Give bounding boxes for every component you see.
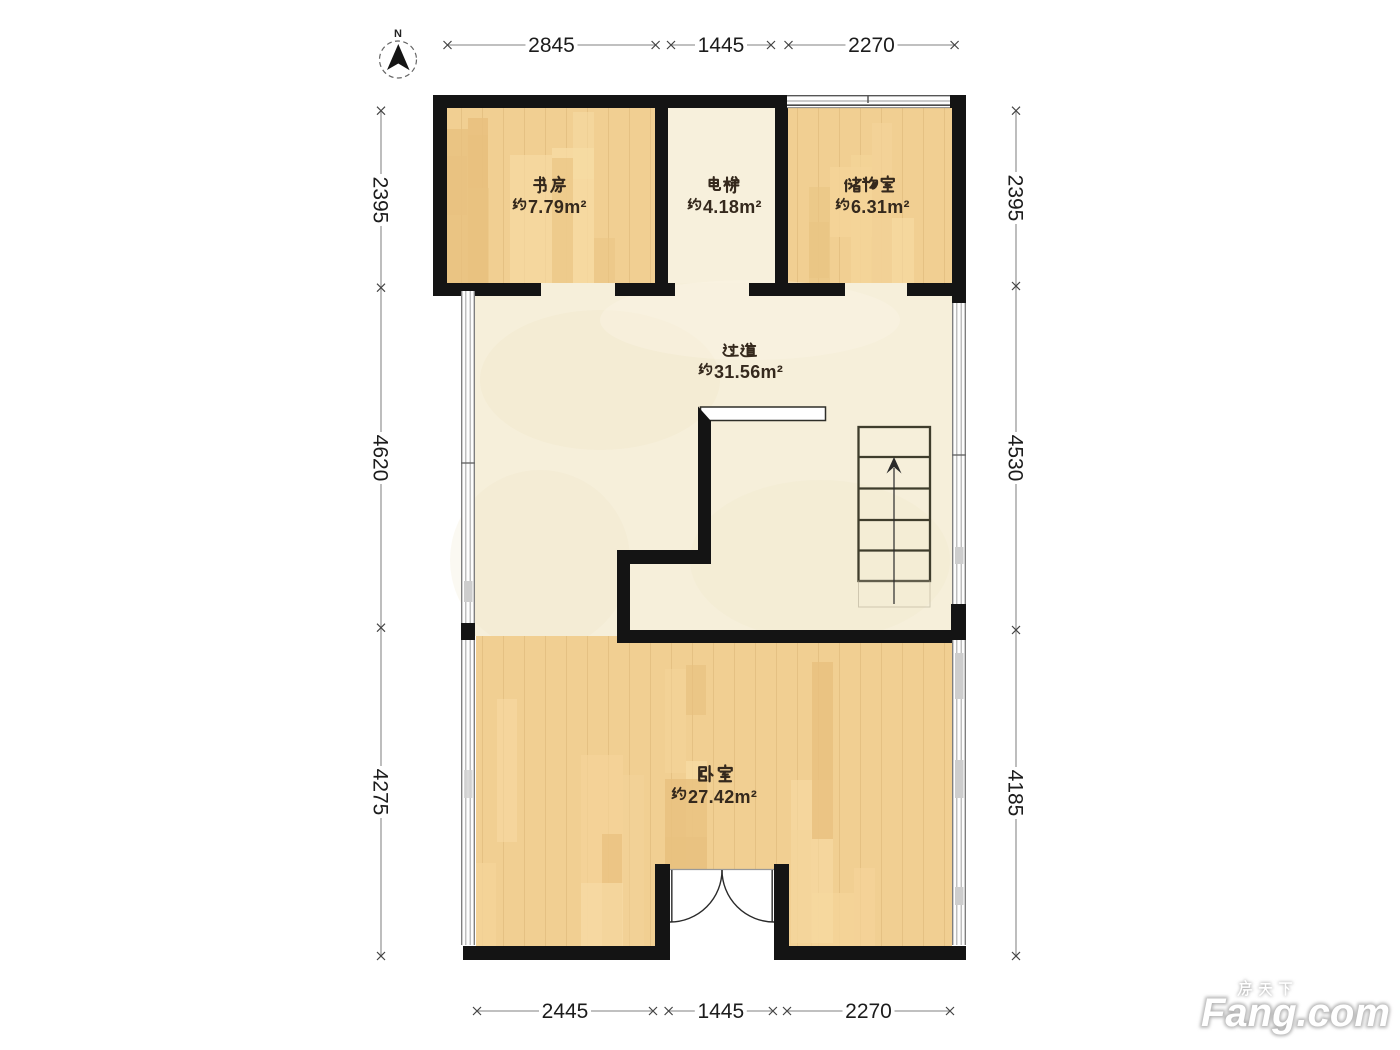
svg-text:1445: 1445 [698, 34, 745, 57]
svg-text:2395: 2395 [369, 177, 392, 224]
svg-text:N: N [394, 28, 402, 40]
svg-text:31.56m²: 31.56m² [714, 362, 783, 382]
svg-text:Fang.com: Fang.com [1201, 991, 1390, 1035]
svg-text:2845: 2845 [528, 34, 575, 57]
svg-text:2270: 2270 [848, 34, 895, 57]
svg-text:4.18m²: 4.18m² [703, 197, 762, 217]
svg-text:4185: 4185 [1004, 770, 1027, 817]
svg-text:1445: 1445 [697, 1000, 744, 1023]
svg-text:4620: 4620 [369, 435, 392, 482]
svg-text:27.42m²: 27.42m² [688, 787, 757, 807]
svg-text:2445: 2445 [542, 1000, 589, 1023]
svg-text:2395: 2395 [1004, 175, 1027, 222]
svg-text:4530: 4530 [1004, 435, 1027, 482]
svg-text:6.31m²: 6.31m² [851, 197, 910, 217]
svg-text:4275: 4275 [369, 769, 392, 816]
svg-text:7.79m²: 7.79m² [528, 197, 587, 217]
svg-text:2270: 2270 [845, 1000, 892, 1023]
